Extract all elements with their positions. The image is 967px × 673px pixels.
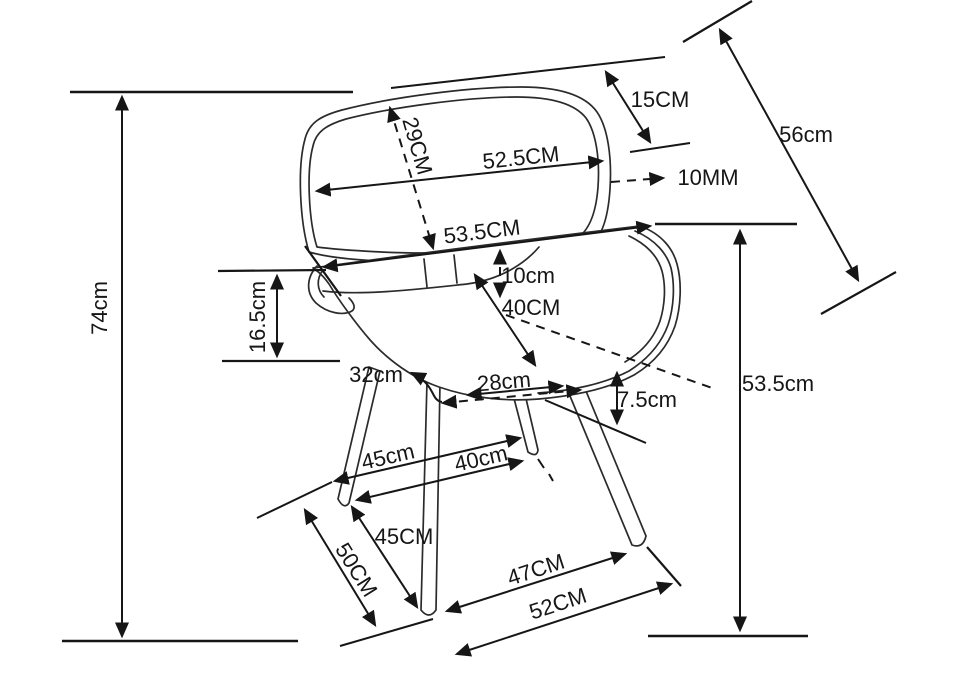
leg-front-left	[421, 381, 440, 615]
dimension-label-16-5cm: 16.5cm	[245, 281, 270, 353]
dimension-label-15cm: 15CM	[631, 87, 690, 112]
dim-side-leg-spread: 50CM	[257, 482, 433, 646]
dimension-label-32cm: 32cm	[349, 362, 403, 387]
dimension-label-53-5cm-height: 53.5cm	[742, 371, 814, 396]
dim-shell-thickness: 10MM	[611, 165, 739, 190]
dim-backrest-diagonal: 56cm	[683, 1, 896, 314]
chair-dimension-diagram: 74cm 16.5cm 29CM 52.5CM 15CM 56cm 10MM	[0, 0, 967, 673]
dim-outer-foot-span: 52CM	[457, 547, 681, 654]
ref-line-top	[391, 57, 665, 88]
ground-tick-upper	[257, 482, 332, 518]
dimension-label-7-5cm: 7.5cm	[617, 387, 677, 412]
leg-back-left	[338, 367, 380, 506]
dimension-label-10mm: 10MM	[677, 165, 738, 190]
ref-line-top	[218, 270, 326, 271]
diagram-svg: 74cm 16.5cm 29CM 52.5CM 15CM 56cm 10MM	[0, 0, 967, 673]
dimension-label-45cm: 45cm	[359, 438, 417, 474]
dimension-label-10cm: 10cm	[501, 263, 555, 288]
end-tick-right	[647, 547, 681, 586]
leg-foot-dash	[538, 459, 553, 481]
dimension-label-74cm: 74cm	[87, 281, 112, 335]
dimension-label-56cm: 56cm	[779, 122, 833, 147]
end-tick-top	[683, 1, 752, 42]
dimension-label-47cm: 47CM	[504, 549, 568, 591]
dimension-label-52cm: 52CM	[526, 583, 590, 625]
dimension-label-28cm: 28cm	[476, 367, 532, 397]
ref-line-bottom	[630, 143, 690, 152]
ground-tick-lower	[340, 619, 433, 646]
end-tick-bottom	[821, 272, 896, 314]
dimension-label-45cm-leg: 45CM	[375, 524, 434, 549]
dim-back-to-seat-gap: 16.5cm	[218, 270, 340, 361]
leader-arrow-dashed	[611, 178, 663, 182]
dimension-label-40cm: 40cm	[452, 440, 510, 476]
